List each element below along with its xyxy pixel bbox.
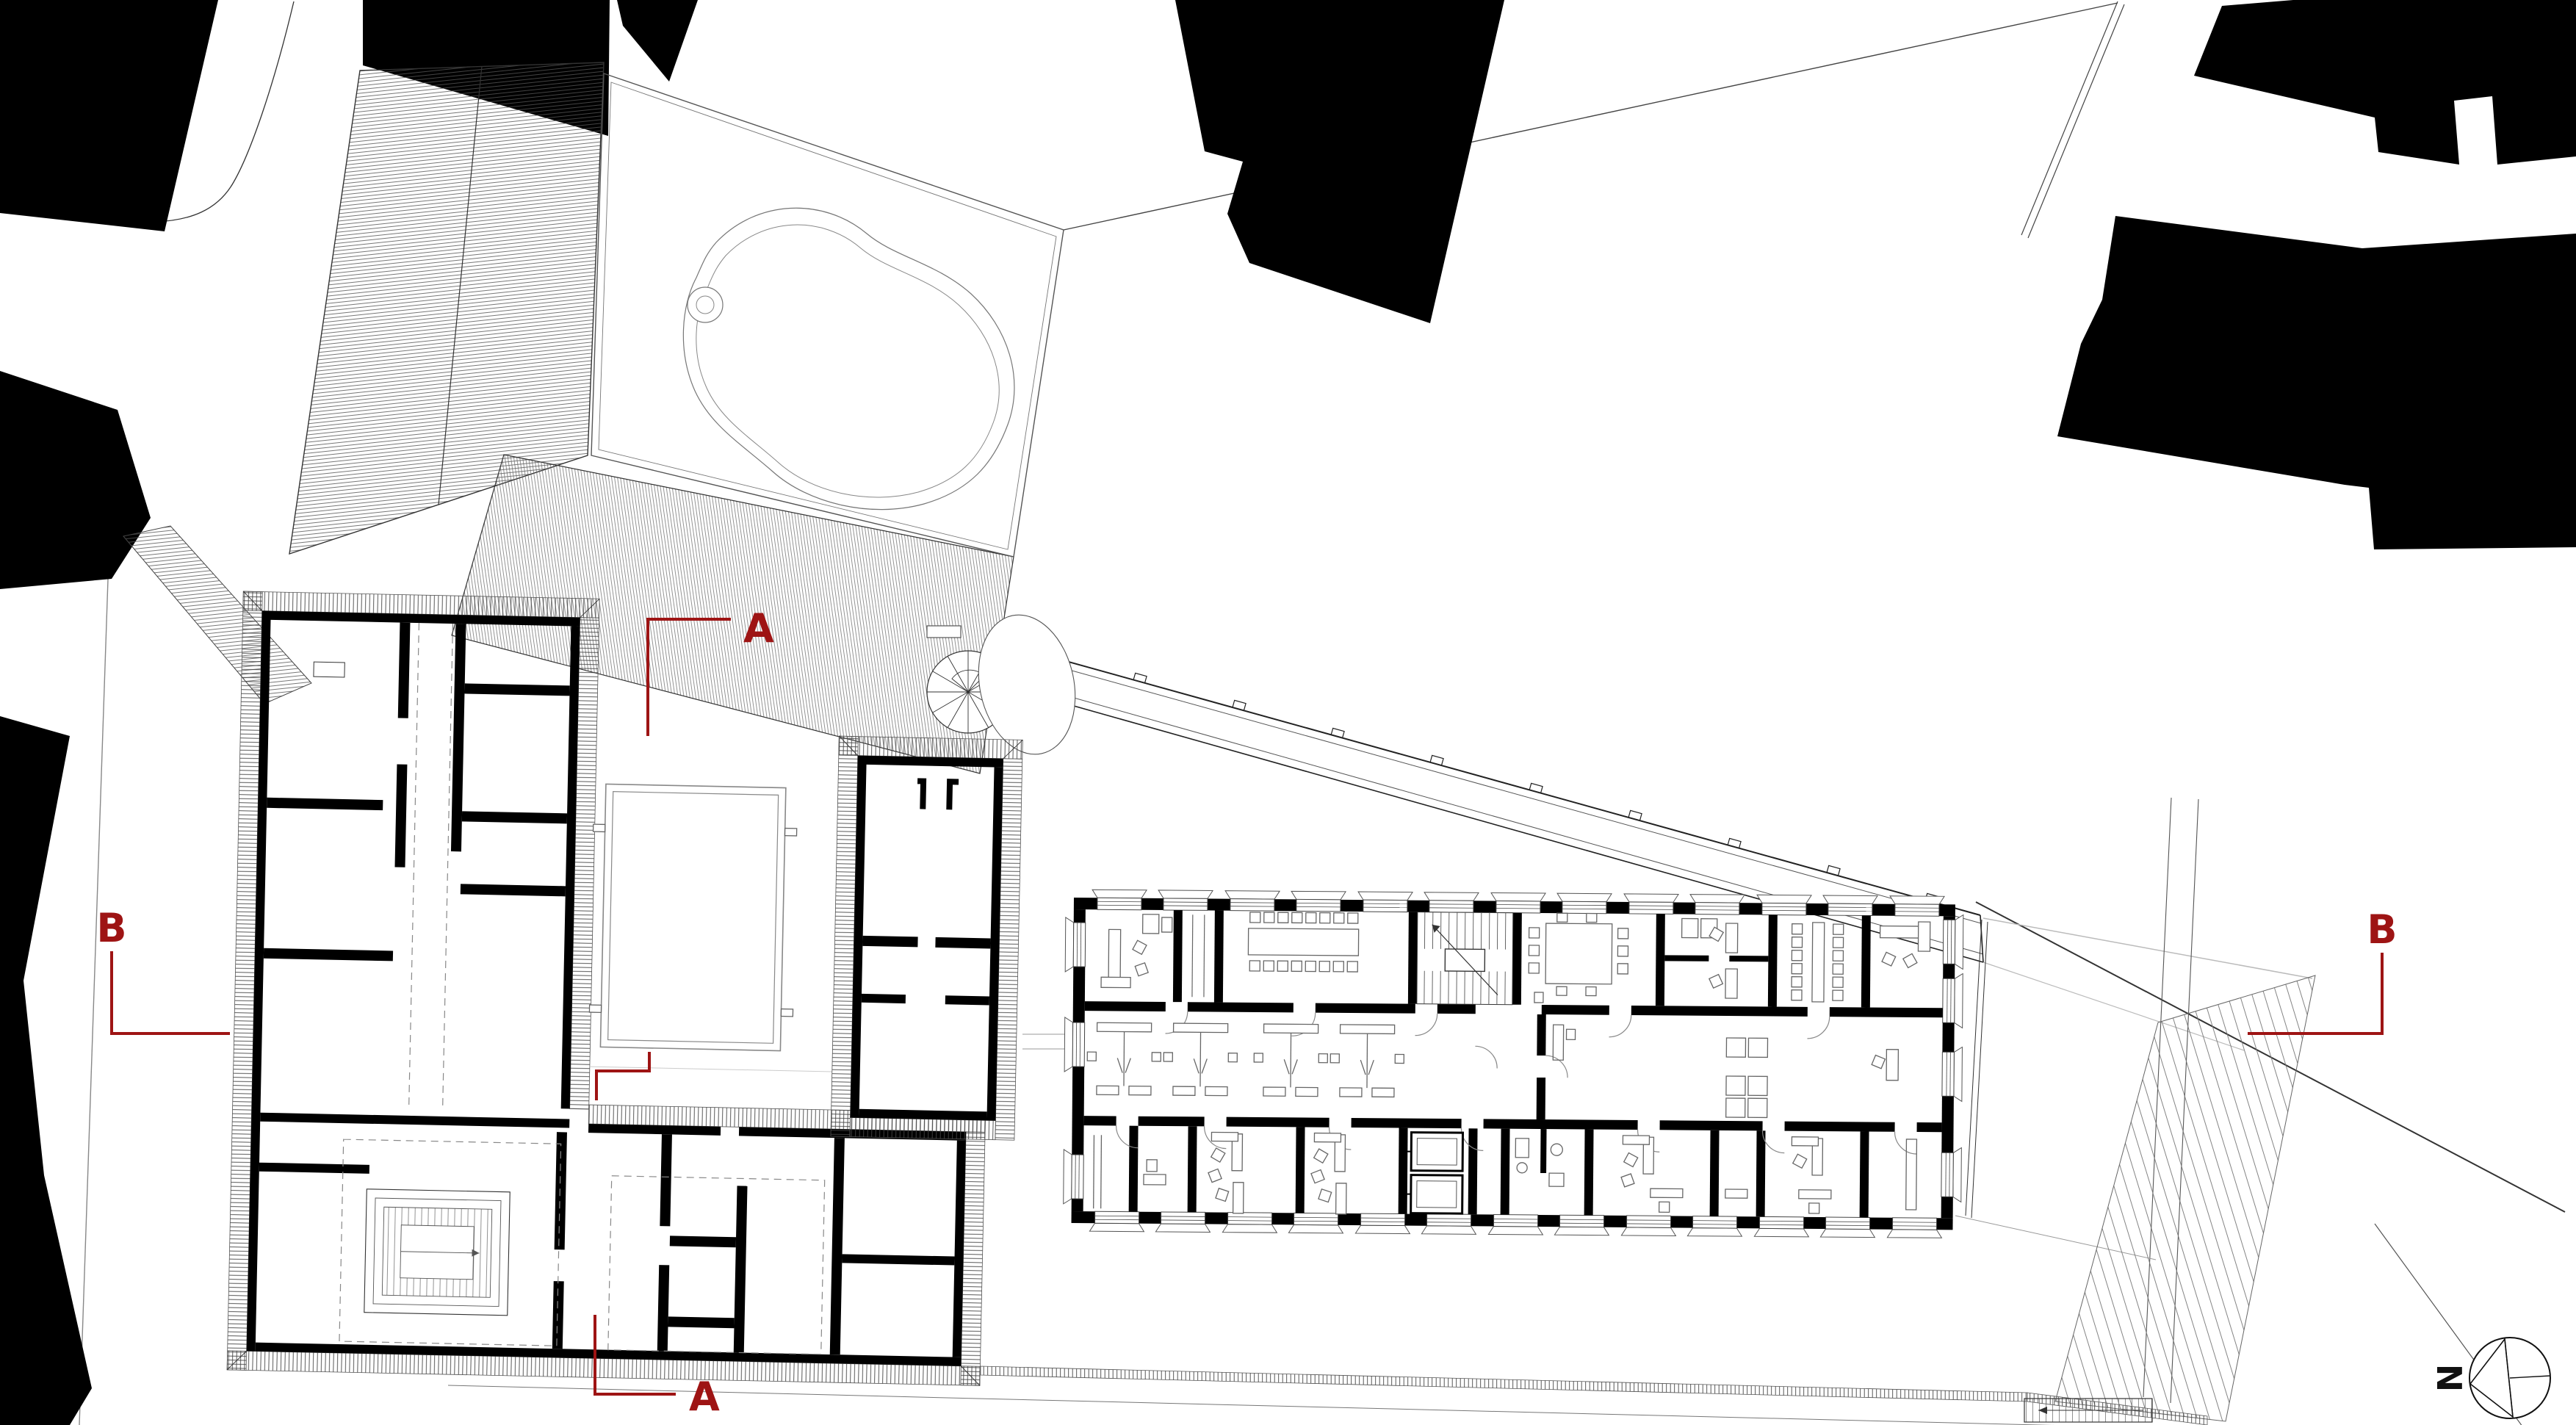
boundary-line-west [79,514,110,1425]
office-building-plan [1063,890,1963,1238]
context-building [0,716,92,1425]
corridor-closets [1553,1025,1768,1117]
site-wall [981,1366,2027,1401]
walkway-buttresses [1133,673,1938,903]
boundary-double-1 [2021,1,2118,235]
duct-marks [917,778,959,809]
section-label-b-left: B [96,905,126,951]
meeting-table [1545,923,1612,984]
context-building [1175,0,1504,323]
stair [364,1189,510,1316]
fountain-icon [688,287,723,322]
sight-line-1 [1983,918,2312,978]
external-ramp [2055,975,2315,1421]
wc-room [1515,1129,1565,1187]
section-label-a-top: A [743,605,774,652]
elevator [1407,1175,1462,1214]
north-arrow: N [2429,1338,2550,1418]
pool-ladder [785,829,797,836]
pool-ladder [589,1005,601,1012]
site-plan-canvas: A A B B N [0,0,2576,1425]
dashed-overlay-upper [409,623,453,1106]
context-building [617,0,698,82]
external-stair [2024,1399,2152,1422]
lower-wing-walls [256,1117,966,1366]
context-building [0,0,218,231]
training-table [1812,923,1825,1002]
garden-gate [927,626,961,638]
walkway-top-edge-2 [1035,660,1981,923]
courtyard-pool [588,784,797,1051]
section-line-b-left [112,951,230,1033]
section-label-b-right: B [2367,906,2397,953]
north-letter: N [2429,1364,2469,1393]
context-building [0,371,151,589]
stair [1417,912,1513,1005]
pool-ladder [594,824,605,831]
context-building [2194,0,2576,165]
elevator [1407,1133,1462,1172]
section-line-a-jog [596,1052,649,1100]
section-label-a-bottom: A [689,1374,720,1420]
shaft [314,662,344,677]
context-building [2057,216,2576,549]
site-plan-drawing: A A B B N [0,0,2576,1425]
meeting-table [1248,928,1358,956]
boundary-double-2 [2028,4,2124,238]
pool-ladder [781,1009,793,1017]
garden-pond-outer [683,208,1014,509]
section-marker-b: B B [96,905,2397,1033]
annex-plan [831,736,1022,1140]
